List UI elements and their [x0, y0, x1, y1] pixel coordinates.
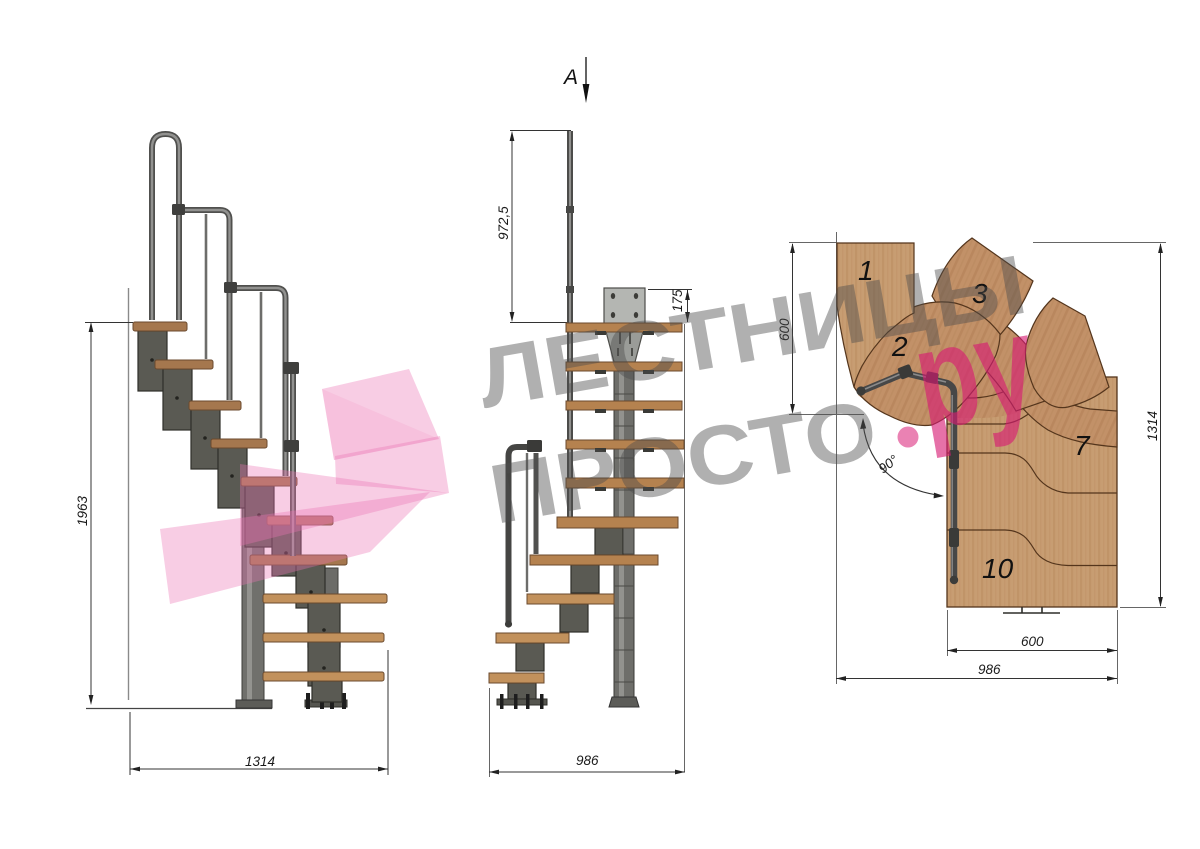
svg-text:1963: 1963 — [75, 495, 90, 526]
svg-text:A: A — [562, 66, 578, 89]
svg-text:986: 986 — [576, 753, 599, 768]
svg-text:7: 7 — [1074, 430, 1091, 461]
svg-text:1314: 1314 — [245, 754, 275, 769]
svg-text:10: 10 — [982, 553, 1014, 584]
svg-text:1314: 1314 — [1145, 411, 1160, 441]
svg-text:600: 600 — [1021, 634, 1044, 649]
svg-text:986: 986 — [978, 662, 1001, 677]
svg-text:972,5: 972,5 — [496, 206, 511, 240]
